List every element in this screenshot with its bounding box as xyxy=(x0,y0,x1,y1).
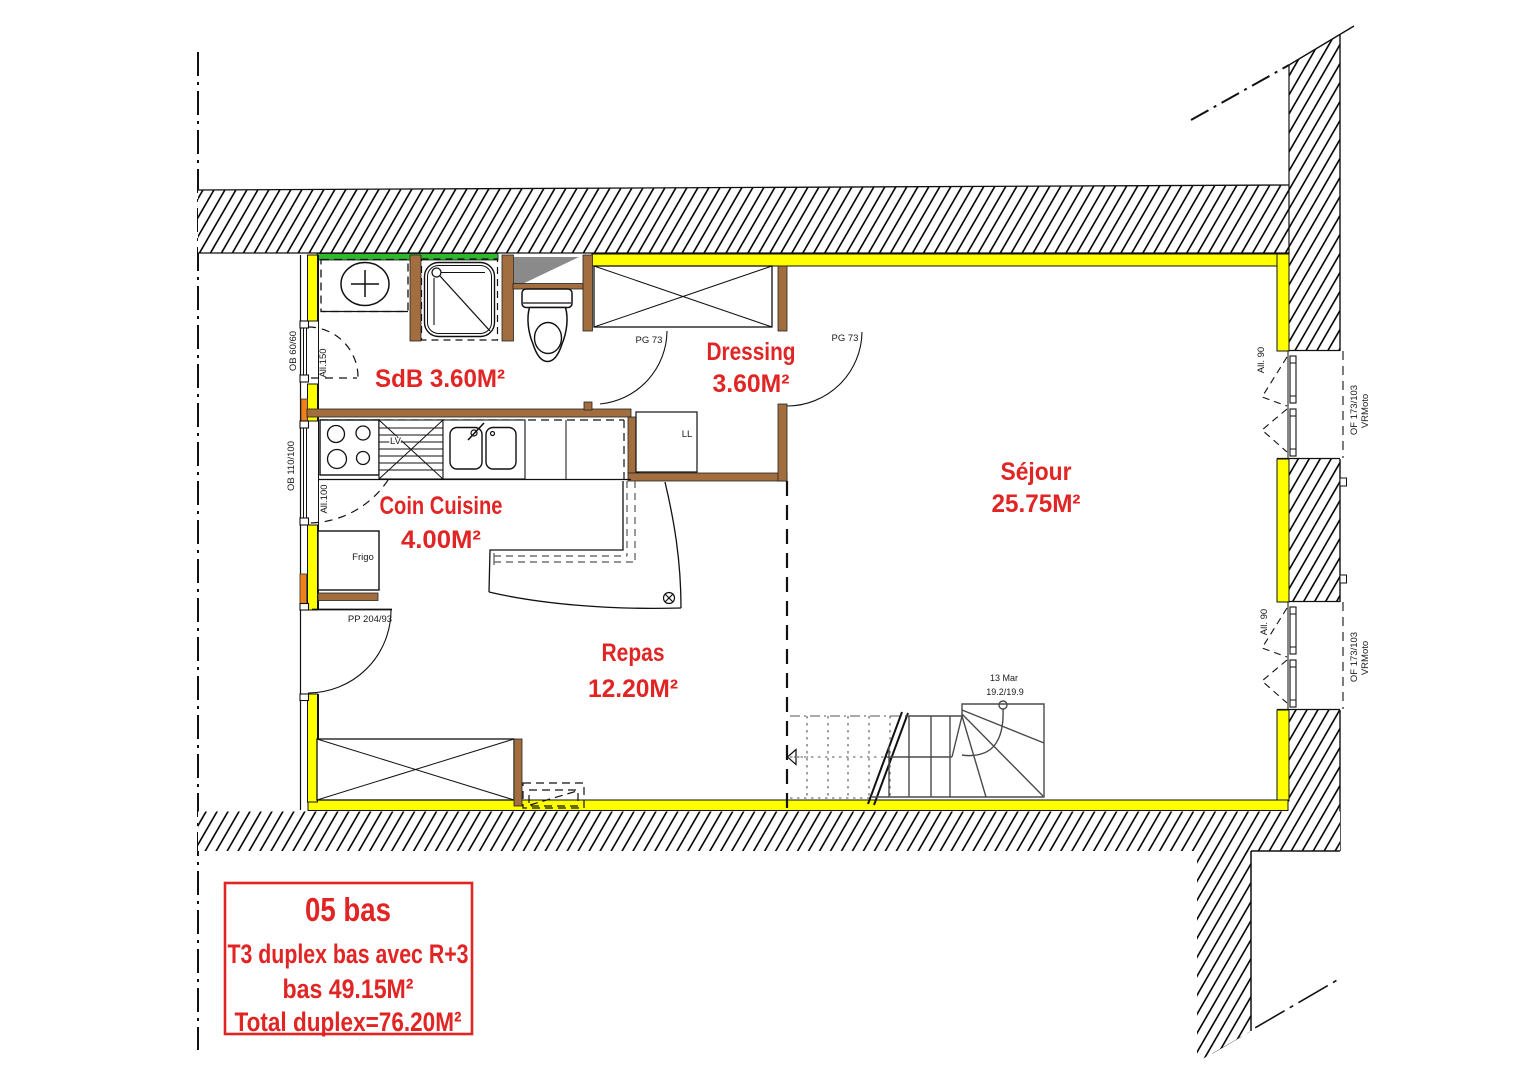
svg-text:LL: LL xyxy=(682,429,693,440)
svg-text:PP 204/93: PP 204/93 xyxy=(348,614,392,625)
svg-text:All. 90: All. 90 xyxy=(1259,609,1270,635)
svg-text:VRMoto: VRMoto xyxy=(1360,394,1371,428)
svg-text:25.75M²: 25.75M² xyxy=(992,490,1081,518)
svg-text:bas 49.15M²: bas 49.15M² xyxy=(283,974,414,1004)
svg-text:4.00M²: 4.00M² xyxy=(401,526,481,554)
svg-text:LV: LV xyxy=(390,436,402,447)
svg-text:3.60M²: 3.60M² xyxy=(713,370,790,398)
svg-text:Coin Cuisine: Coin Cuisine xyxy=(380,492,503,520)
svg-text:T3 duplex bas avec R+3: T3 duplex bas avec R+3 xyxy=(228,939,469,969)
svg-text:19.2/19.9: 19.2/19.9 xyxy=(986,687,1024,697)
svg-text:05 bas: 05 bas xyxy=(305,891,391,928)
svg-text:OB 60/60: OB 60/60 xyxy=(288,331,299,371)
svg-text:OF 173/103: OF 173/103 xyxy=(1349,632,1360,682)
svg-text:All.150: All.150 xyxy=(318,348,329,377)
svg-text:OB 110/100: OB 110/100 xyxy=(286,441,297,491)
svg-text:OF 173/103: OF 173/103 xyxy=(1349,385,1360,435)
svg-text:All. 90: All. 90 xyxy=(1256,347,1267,373)
svg-text:PG 73: PG 73 xyxy=(832,333,859,344)
svg-text:Dressing: Dressing xyxy=(707,338,796,366)
svg-text:Repas: Repas xyxy=(602,639,665,667)
svg-text:PG 73: PG 73 xyxy=(636,335,663,346)
svg-text:13 Mar: 13 Mar xyxy=(990,673,1018,683)
svg-text:SdB 3.60M²: SdB 3.60M² xyxy=(375,365,505,393)
svg-text:VRMoto: VRMoto xyxy=(1360,641,1371,675)
svg-text:All.100: All.100 xyxy=(319,484,330,513)
svg-text:Séjour: Séjour xyxy=(1001,458,1072,486)
svg-text:12.20M²: 12.20M² xyxy=(588,675,678,703)
svg-text:Frigo: Frigo xyxy=(352,552,374,563)
svg-text:Total duplex=76.20M²: Total duplex=76.20M² xyxy=(235,1007,462,1037)
